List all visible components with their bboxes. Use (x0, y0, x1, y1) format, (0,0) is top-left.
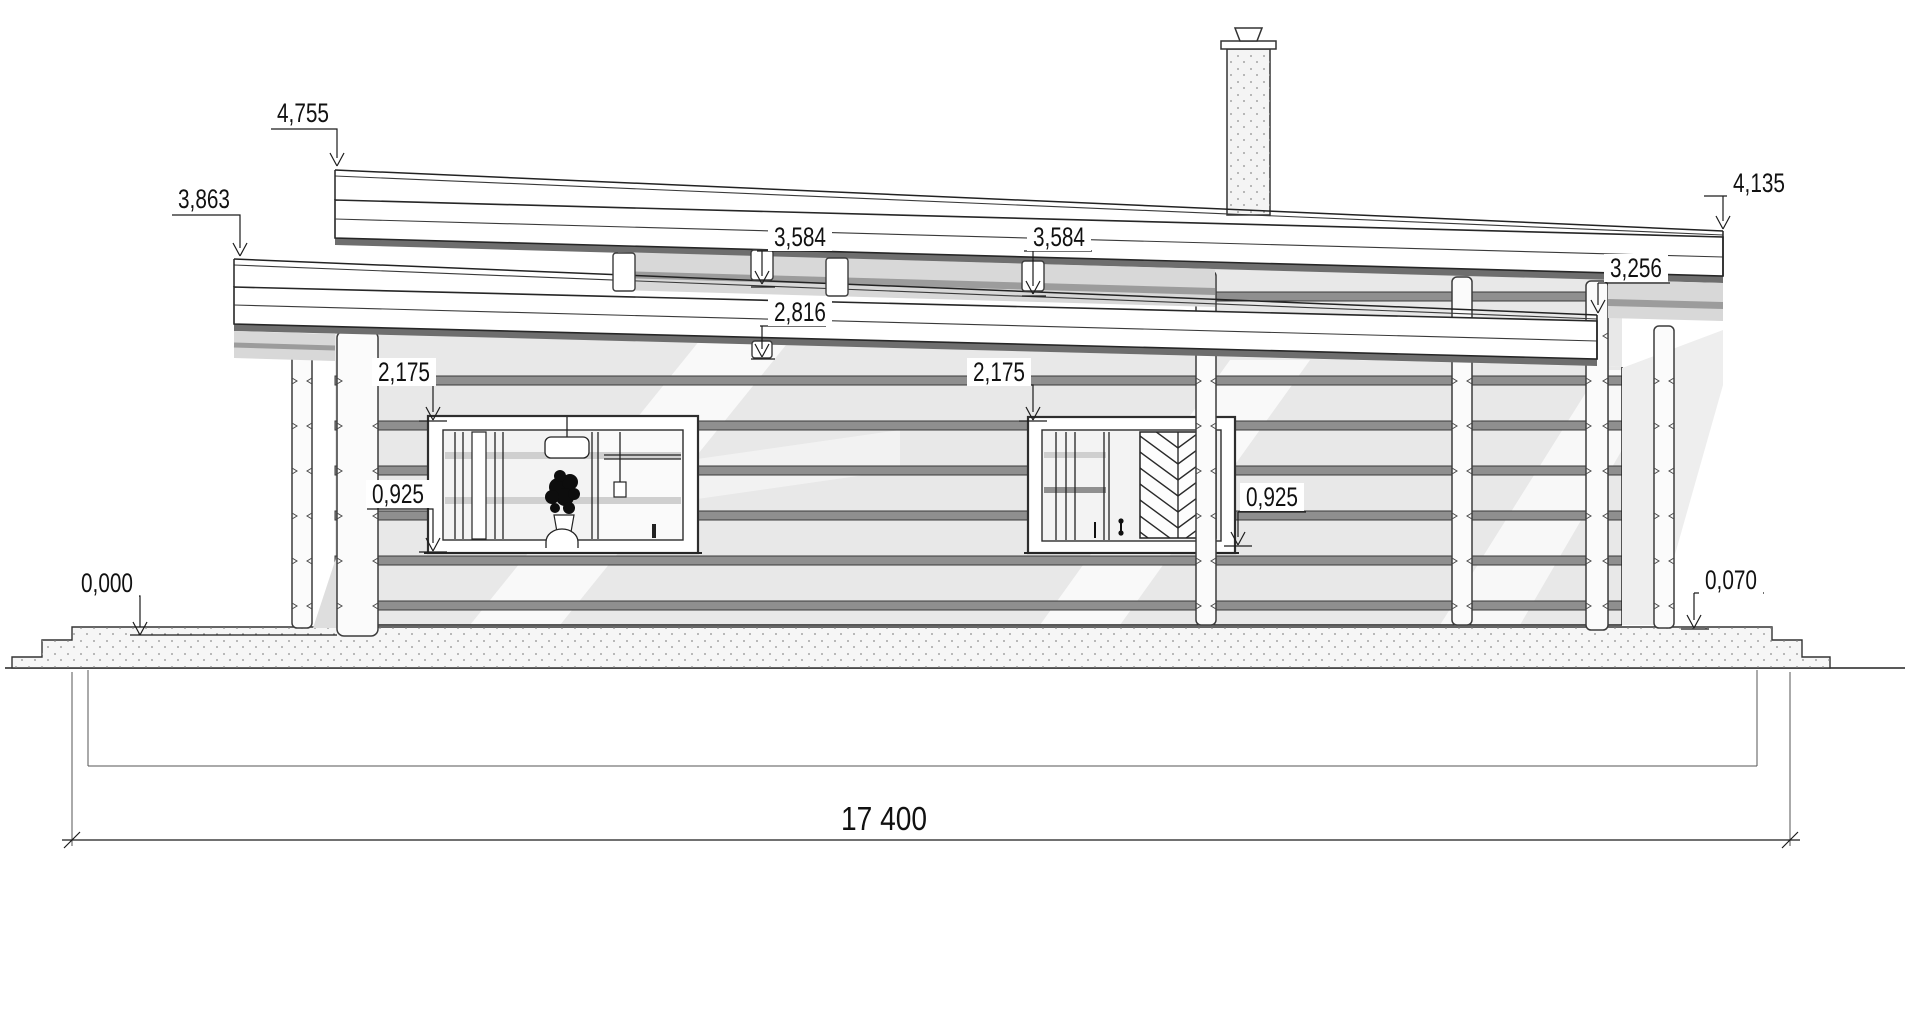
overall-dimension: 17 400 (62, 672, 1800, 848)
window-left-interior (445, 417, 682, 548)
dim-label: 0,000 (81, 568, 133, 598)
porch-post-right (1654, 326, 1674, 628)
bottle (652, 524, 656, 538)
footing-outline (88, 670, 1757, 766)
dim-label: 2,175 (378, 357, 430, 387)
dim-roof-high-left: 4,755 (271, 98, 344, 166)
overall-width-label: 17 400 (841, 800, 927, 837)
dim-label: 3,584 (774, 222, 826, 252)
dim-label: 3,584 (1033, 222, 1085, 252)
dim-label: 0,925 (1246, 482, 1298, 512)
elevation-sheet: 4,755 3,863 3,584 3,584 2,816 (0, 0, 1920, 1035)
dim-label: 0,925 (372, 479, 424, 509)
chimney-cap (1221, 41, 1276, 49)
chimney (1221, 28, 1276, 215)
dim-label: 2,175 (973, 357, 1025, 387)
purlin-block (826, 258, 848, 296)
elevation-drawing: 4,755 3,863 3,584 3,584 2,816 (0, 0, 1920, 1035)
dim-roof-high-right: 4,135 (1704, 168, 1791, 229)
pendant-lamp (614, 482, 626, 497)
porch-post-left (292, 335, 312, 628)
dim-label: 3,863 (178, 184, 230, 214)
chimney-flue (1235, 28, 1262, 41)
dim-label: 0,070 (1705, 565, 1757, 595)
dim-terrace-right: 0,070 (1681, 565, 1764, 629)
dim-label: 4,135 (1733, 168, 1785, 198)
purlin-block (613, 253, 635, 291)
porch-shadow-left (313, 555, 337, 628)
dim-label: 4,755 (277, 98, 329, 128)
foundation (5, 627, 1905, 766)
dim-roof-low-left: 3,863 (172, 184, 247, 256)
range-hood (545, 437, 589, 458)
interior-log-column (472, 432, 486, 539)
window-left (424, 416, 702, 553)
dim-label: 3,256 (1610, 253, 1662, 283)
dim-label: 2,816 (774, 297, 826, 327)
